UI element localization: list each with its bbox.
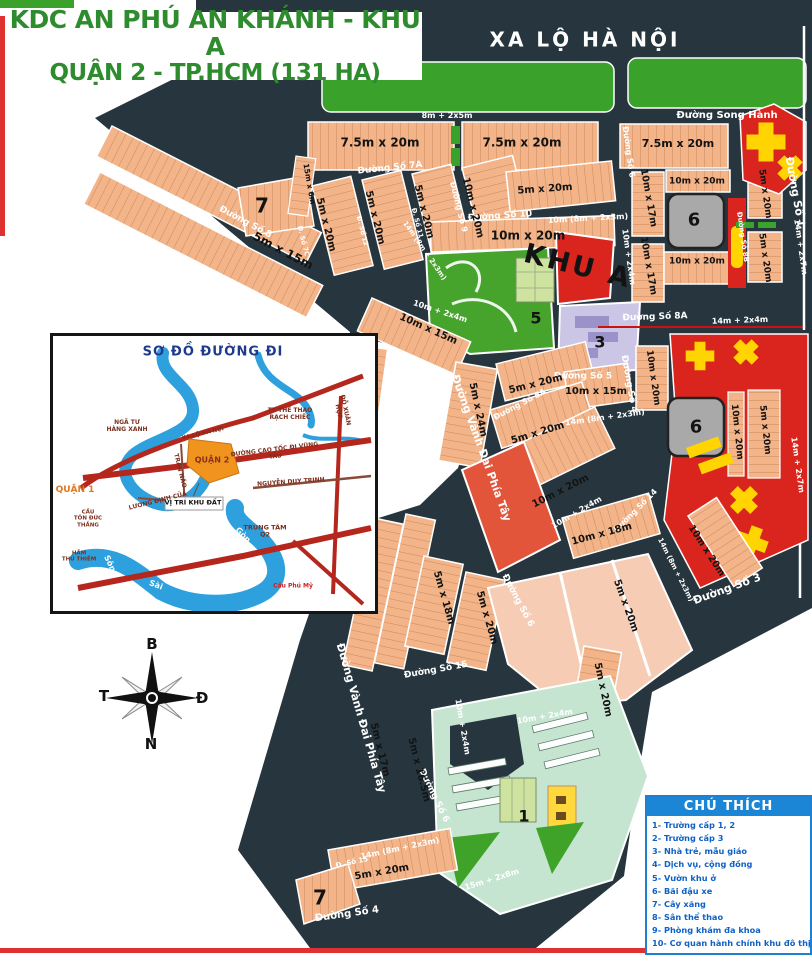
lot-size-label: 5m x 20m [510, 421, 566, 447]
facility-number-6: 6 [688, 212, 701, 231]
compass-west: T [99, 687, 109, 705]
road-dim-label: 10m + 2x4m [412, 299, 468, 324]
road-dim-label: 10m + 2x4m [550, 495, 603, 530]
road-dim-label: 15m + 2x8m [464, 868, 520, 893]
lot-size-label: 10m x 20m [728, 404, 743, 461]
inset-label-cau-phu-my: Cầu Phú Mỹ [273, 584, 313, 591]
street-label-8a: Đường Số 8A [622, 312, 687, 324]
road-dim-label: 14m (8m + 2x3m) [360, 837, 440, 862]
lot-size-label: 5m x 20m [354, 863, 410, 883]
street-label-7a: Đường Số 7A [357, 161, 423, 177]
street-label-1: Đường Số 1 [783, 156, 807, 228]
lot-size-label: 5m x 16.5m [405, 737, 431, 803]
lot-size-label: 10m x 20m [491, 230, 566, 243]
street-label-15-short: Đ. Số 15 [335, 856, 369, 870]
lot-size-label: 10m x 18m [571, 522, 634, 548]
inset-label-quan-1: QUẬN 1 [56, 485, 95, 495]
legend-item: 3- Nhà trẻ, mẫu giáo [652, 845, 807, 858]
lot-size-label: 5m x 20m [313, 197, 337, 253]
facility-number-1: 1 [518, 809, 529, 826]
facility-number-6: 6 [690, 419, 703, 438]
street-label-vanh-dai: Đường Vành Đai Phía Tây [334, 642, 388, 794]
zoning-map-poster: XA LỘ HÀ NỘI Đường Song Hành 8m + 2x5m Đ… [0, 0, 812, 960]
road-dim-label: 14m (8m + 2x3m) [656, 537, 694, 603]
road-dim-label: 10m + 2x4m [620, 229, 636, 286]
lot-size-label: 5m x 24m [466, 382, 488, 438]
inset-label-cau-tdt: CẦU TÔN ĐỨC THẮNG [74, 510, 102, 529]
facility-number-7: 7 [255, 196, 269, 217]
legend-item: 4- Dịch vụ, cộng đồng [652, 858, 807, 871]
legend-list: 1- Trường cấp 1, 2 2- Trường cấp 3 3- Nh… [647, 819, 810, 950]
street-label-12: Đ. Số 12 [355, 215, 369, 246]
facility-number-5: 5 [530, 311, 541, 328]
lot-size-label: 10m x 20m [643, 350, 660, 407]
compass-north: B [146, 635, 157, 653]
lot-size-label: 10m x 20m [686, 524, 726, 579]
legend-item: 7- Cây xăng [652, 898, 807, 911]
street-label-8b: Đường Số 8B [735, 211, 749, 262]
street-label-5: Đường Số 5 [554, 372, 612, 381]
lot-size-label: 10m x 15m [398, 313, 459, 348]
legend-title: CHÚ THÍCH [647, 797, 810, 816]
legend-item: 9- Phòng khám đa khoa [652, 924, 807, 937]
legend-box: CHÚ THÍCH 1- Trường cấp 1, 2 2- Trường c… [645, 795, 812, 955]
street-label-vanh-dai: Đường Vành Đai Phía Tây [449, 373, 513, 523]
khu-a-label: KHU A [521, 240, 635, 294]
road-dim-label: 14m (8m + 2x3m) [565, 408, 646, 427]
lot-size-label: 5m x 18m [430, 570, 455, 626]
street-label-3: Đường Số 3 [692, 571, 763, 606]
legend-item: 8- Sân thể thao [652, 911, 807, 924]
street-label-10: Đường Số 10 [468, 210, 533, 224]
street-label-6: Đường Số 6 [416, 768, 450, 824]
facility-number-3: 3 [594, 335, 605, 352]
title-line-2: QUẬN 2 - TP.HCM (131 HA) [8, 61, 422, 86]
lot-size-label: 10m x 17m [638, 168, 658, 228]
lot-size-label: 5m x 20m [591, 662, 613, 718]
road-dim-label: 14m (8m + 2x3m) [401, 220, 447, 282]
lot-size-label: 5m x 20m [473, 590, 498, 646]
road-dim-label: 14m + 2x7m [789, 437, 805, 494]
legend-item: 2- Trường cấp 3 [652, 832, 807, 845]
street-label-14: Đường Số 14 [613, 488, 659, 534]
compass-east: Đ [196, 689, 209, 707]
inset-label-ham-thu-thiem: HẦM THỦ THIÊM [62, 551, 96, 564]
lot-size-label: 5m x 20m [757, 405, 772, 455]
highway-label: XA LỘ HÀ NỘI [490, 30, 681, 51]
lot-size-label: 10m x 15m [565, 387, 627, 398]
poster-title: KDC AN PHÚ AN KHÁNH - KHU A QUẬN 2 - TP.… [8, 12, 422, 80]
road-dim-label: 14m + 2x7m [792, 219, 808, 276]
street-label-4-bottom: Đường Số 4 [314, 905, 379, 924]
lot-size-label: 5m x 17m [367, 722, 391, 778]
street-label-7c: Đ. Số 7C [296, 225, 310, 257]
lot-size-label: 10m x 20m [531, 473, 591, 511]
lot-size-label: 5m x 20m [756, 233, 772, 283]
lot-size-label: 7.5m x 20m [482, 137, 561, 150]
street-label-8: Đường Số 8 [217, 205, 273, 241]
inset-route-map: SƠ ĐỒ ĐƯỜNG ĐI NGÃ TƯ HÀNG XANH TT THỂ T… [50, 333, 378, 614]
title-line-1: KDC AN PHÚ AN KHÁNH - KHU A [8, 6, 422, 61]
road-dim-label: 10m + 2x4m [453, 699, 471, 756]
compass-south: N [145, 735, 158, 753]
road-dim-label: 10m (8m + 2x3m) [548, 213, 629, 226]
street-label-15: Đường Số 15 [403, 661, 468, 681]
inset-label-hang-xanh: NGÃ TƯ HÀNG XANH [106, 420, 147, 434]
legend-item: 1- Trường cấp 1, 2 [652, 819, 807, 832]
lot-size-label: 10m x 17m [638, 236, 658, 296]
lot-size-label: 5m x 20m [611, 578, 640, 633]
street-label-song-hanh: Đường Song Hành [676, 111, 777, 122]
lot-size-label: 10m x 20m [669, 257, 725, 266]
street-label-6: Đường Số 6 [499, 573, 535, 629]
street-label-9: Đường Số 9 [448, 181, 469, 233]
street-label-4: Đường Số 4 [618, 355, 637, 414]
facility-number-7: 7 [313, 888, 327, 909]
lot-size-label: 7.5m x 20m [642, 138, 714, 150]
lot-size-label: 7.5m x 20m [340, 137, 419, 150]
street-label-11: Đ. Số 11 [410, 207, 424, 238]
inset-title: SƠ ĐỒ ĐƯỜNG ĐI [143, 346, 284, 361]
lot-size-label: 5m x 20m [756, 169, 772, 219]
legend-item: 10- Cơ quan hành chính khu đô thị [652, 937, 807, 950]
inset-label-rach-chiec: TT THỂ THAO RẠCH CHIẾC [268, 408, 313, 422]
lot-size-label: 5m x 20m [362, 190, 386, 246]
lot-size-label: 10m x 20m [459, 177, 484, 240]
street-label-6-top: Đường Số 6 [620, 126, 636, 178]
road-dim-label: 8m + 2x5m [422, 112, 473, 120]
lot-size-label: 10m x 20m [669, 177, 725, 186]
road-dim-label: 10m + 2x4m [517, 708, 574, 726]
inset-graphic [53, 336, 375, 611]
road-dim-label: 14m + 2x4m [712, 316, 769, 326]
street-label-5a: Đường Số 5A [492, 388, 547, 423]
lot-size-label: 5m x 20m [517, 183, 573, 197]
lot-size-label: 5m x 15m [251, 230, 315, 272]
lot-size-label: 5m x 20m [411, 184, 435, 240]
legend-item: 5- Vườn khu ở [652, 872, 807, 885]
legend-item: 6- Bãi đậu xe [652, 885, 807, 898]
lot-size-label: 15m x 6m [302, 163, 317, 205]
lot-size-label: 5m x 20m [508, 373, 564, 397]
